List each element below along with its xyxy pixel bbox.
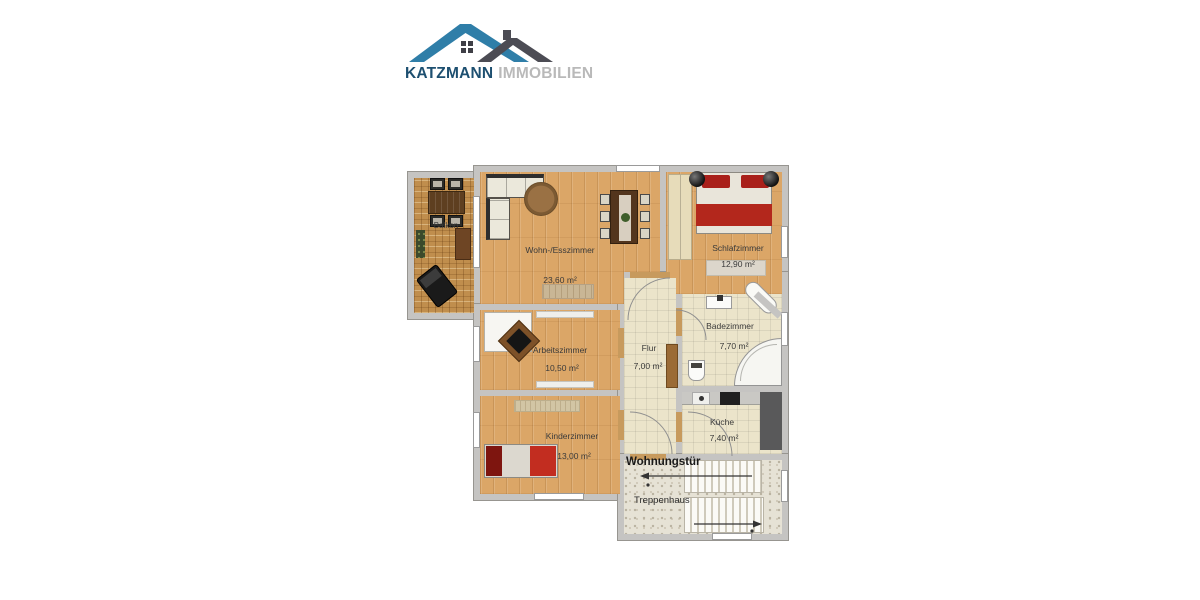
stove [720, 392, 740, 405]
logo-roof-icon [405, 12, 570, 64]
dining-table [610, 190, 638, 244]
label-bedroom: Schlafzimmer [712, 244, 763, 253]
kids-bed-blanket [530, 446, 556, 476]
label-kitchen-area: 7,40 m² [710, 434, 739, 443]
label-bath-area: 7,70 m² [720, 342, 749, 351]
kitchen-counter-right [760, 392, 782, 450]
stairs-lower-flight [684, 497, 764, 533]
window-stairwell-right [781, 470, 788, 502]
kids-bed-pillow [486, 446, 502, 476]
dining-chair [600, 194, 610, 205]
bed-blanket [696, 204, 772, 226]
faucet-icon [699, 396, 704, 401]
brand-suffix: IMMOBILIEN [498, 65, 593, 82]
living-rug [542, 284, 594, 299]
balcony-bench [455, 228, 471, 260]
wardrobe [668, 174, 692, 260]
door-hall-office [618, 328, 624, 358]
dining-chair [640, 228, 650, 239]
label-living-area: 23,60 m² [543, 276, 577, 285]
door-living-hall [630, 272, 670, 278]
round-rug [524, 182, 558, 216]
label-living: Wohn-/Esszimmer [525, 246, 594, 255]
door-hall-kids [618, 410, 624, 440]
hall-cabinet [666, 344, 678, 388]
balcony-table [428, 191, 465, 214]
bath-sink [706, 296, 732, 309]
toilet [688, 360, 705, 381]
dining-chair [640, 211, 650, 222]
label-bedroom-area: 12,90 m² [721, 260, 755, 269]
door-hall-kitchen [676, 412, 682, 442]
brand-name: KATZMANN [405, 65, 493, 82]
page: KATZMANNIMMOBILIEN [0, 0, 1200, 600]
floor-plan: Balkon Wohn-/Esszimmer 23,60 m² Schlafzi… [408, 160, 798, 542]
logo-window-icon [461, 41, 473, 53]
faucet-icon [717, 295, 723, 301]
dining-chair [640, 194, 650, 205]
brand-logo: KATZMANNIMMOBILIEN [405, 12, 585, 83]
office-radiator [536, 381, 594, 388]
corner-sofa [486, 198, 510, 240]
door-hall-bath [676, 308, 682, 336]
label-balcony: Balkon [434, 222, 458, 230]
bed-pillow [702, 175, 730, 188]
label-kids: Kinderzimmer [546, 432, 598, 441]
window-kids-bottom [534, 493, 584, 500]
nightstand [763, 171, 779, 187]
dining-chair [600, 211, 610, 222]
window-kids-left [473, 412, 480, 448]
label-office: Arbeitszimmer [533, 346, 587, 355]
label-hall-area: 7,00 m² [634, 362, 663, 371]
balcony-chair [430, 178, 445, 190]
window-balcony-door [473, 196, 480, 268]
nightstand [689, 171, 705, 187]
dining-chair [600, 228, 610, 239]
label-kitchen: Küche [710, 418, 734, 427]
label-office-area: 10,50 m² [545, 364, 579, 373]
label-stairwell: Treppenhaus [634, 496, 690, 506]
label-bath: Badezimmer [706, 322, 754, 331]
kitchen-sink [692, 392, 710, 405]
office-radiator [536, 311, 594, 318]
window-living-top [616, 165, 660, 172]
label-hall: Flur [642, 344, 657, 353]
kids-rug [514, 400, 580, 412]
brand-wordmark: KATZMANNIMMOBILIEN [405, 65, 585, 83]
window-office-left [473, 326, 480, 362]
window-bedroom-right [781, 226, 788, 258]
table-plant-icon [621, 213, 630, 222]
label-apartment-door: Wohnungstür [626, 457, 701, 469]
balcony-planter [416, 230, 425, 258]
label-kids-area: 13,00 m² [557, 452, 591, 461]
window-stairwell-bottom [712, 533, 752, 540]
balcony-chair [448, 178, 463, 190]
window-bath-right [781, 312, 788, 346]
